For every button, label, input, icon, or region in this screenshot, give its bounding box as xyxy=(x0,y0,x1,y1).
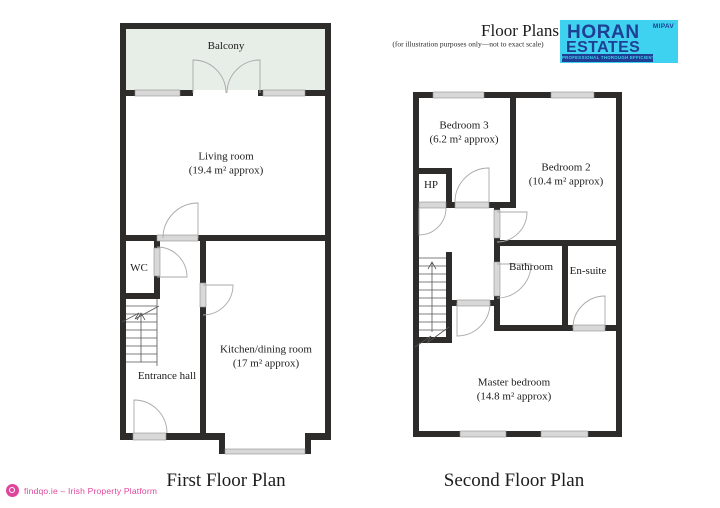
footer-brand-text: findqo.ie – Irish Property Platform xyxy=(24,486,157,496)
room-label-bathroom: Bathroom xyxy=(509,261,553,275)
room-area: (17 m² approx) xyxy=(220,357,312,371)
floor-plans-drawing xyxy=(0,0,720,508)
room-name: Balcony xyxy=(208,40,245,54)
entrance-door-arc xyxy=(134,400,167,433)
bedroom2-door-arc xyxy=(497,212,527,242)
wc-door-arc xyxy=(157,247,187,277)
room-label-master-bedroom: Master bedroom (14.8 m² approx) xyxy=(477,376,551,404)
room-label-kitchen: Kitchen/dining room (17 m² approx) xyxy=(220,343,312,371)
bedroom3-door-arc xyxy=(455,168,489,202)
room-label-entrance-hall: Entrance hall xyxy=(138,370,196,384)
horan-estates-logo: MIPAV HORAN ESTATES PROFESSIONAL THOROUG… xyxy=(560,20,678,63)
page-subtitle: (for illustration purposes only—not to e… xyxy=(392,40,543,49)
room-area: (6.2 m² approx) xyxy=(430,133,499,147)
master-bedroom-door-arc xyxy=(457,303,490,336)
room-label-hp: HP xyxy=(424,179,438,193)
first-floor-stairs xyxy=(122,299,159,366)
room-label-ensuite: En-suite xyxy=(570,265,607,279)
second-floor-caption: Second Floor Plan xyxy=(444,470,584,492)
room-name: Master bedroom xyxy=(477,376,551,390)
room-label-wc: WC xyxy=(130,262,148,276)
room-area: (14.8 m² approx) xyxy=(477,390,551,404)
living-room-door-arc xyxy=(163,203,198,238)
first-floor-plan xyxy=(120,23,331,454)
room-area: (10.4 m² approx) xyxy=(529,175,603,189)
logo-tagline: PROFESSIONAL THOROUGH EFFICIENT xyxy=(562,54,653,62)
page-title: Floor Plans xyxy=(481,21,559,41)
room-name: HP xyxy=(424,179,438,193)
room-label-balcony: Balcony xyxy=(208,40,245,54)
room-name: Bedroom 3 xyxy=(430,119,499,133)
first-floor-windows xyxy=(133,90,305,454)
stairs-up-arrow xyxy=(137,313,145,362)
findqo-logo-icon xyxy=(6,484,19,497)
stairs-up-arrow xyxy=(428,262,436,332)
room-label-living-room: Living room (19.4 m² approx) xyxy=(189,150,263,178)
room-name: WC xyxy=(130,262,148,276)
room-name: Bathroom xyxy=(509,261,553,275)
room-name: Kitchen/dining room xyxy=(220,343,312,357)
first-floor-caption: First Floor Plan xyxy=(166,470,285,492)
room-name: Bedroom 2 xyxy=(529,161,603,175)
room-area: (19.4 m² approx) xyxy=(189,164,263,178)
room-name: En-suite xyxy=(570,265,607,279)
room-label-bedroom2: Bedroom 2 (10.4 m² approx) xyxy=(529,161,603,189)
room-name: Living room xyxy=(189,150,263,164)
kitchen-door-arc xyxy=(203,285,233,315)
ensuite-door-arc xyxy=(573,296,605,328)
second-floor-stairs xyxy=(415,258,449,347)
hp-door-arc xyxy=(419,208,446,235)
room-label-bedroom3: Bedroom 3 (6.2 m² approx) xyxy=(430,119,499,147)
balcony-area xyxy=(126,29,325,90)
logo-badge: MIPAV xyxy=(653,23,674,30)
footer-brand: findqo.ie – Irish Property Platform xyxy=(6,484,157,497)
room-name: Entrance hall xyxy=(138,370,196,384)
